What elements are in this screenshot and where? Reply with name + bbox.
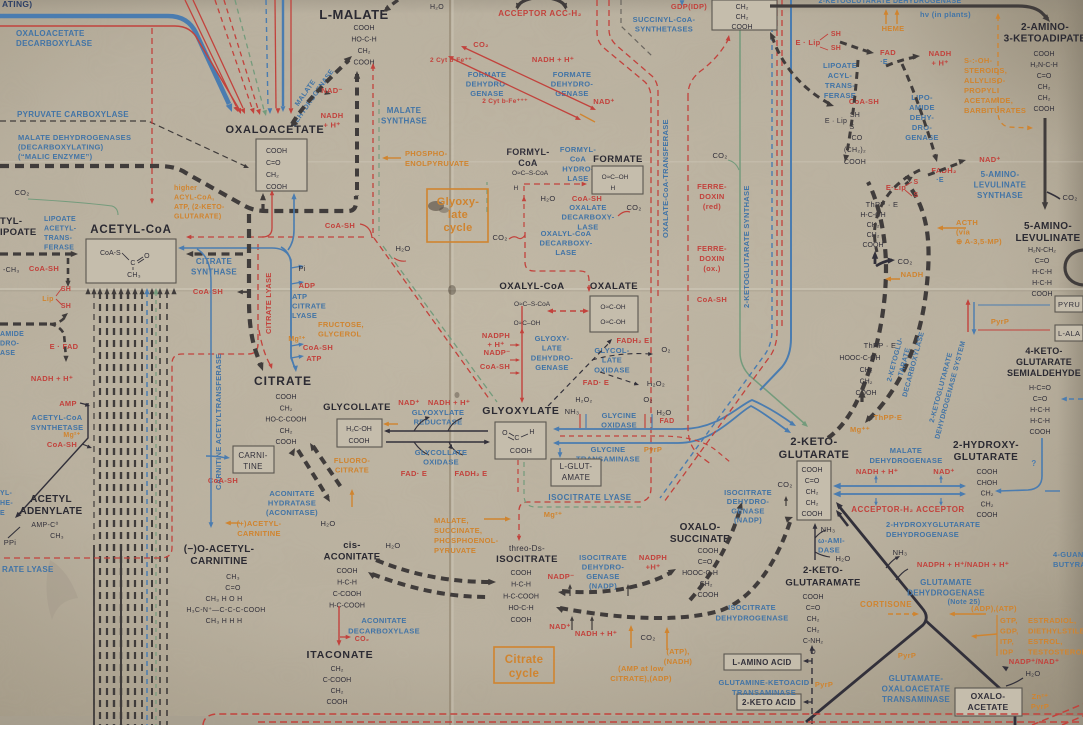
svg-text:H-C-COOH: H-C-COOH	[503, 593, 539, 600]
svg-text:CH₂: CH₂	[981, 501, 994, 508]
svg-text:TRANSAMINASE: TRANSAMINASE	[732, 688, 796, 697]
svg-text:DEHYDRO-: DEHYDRO-	[531, 353, 574, 362]
svg-text:DECARBOXY-: DECARBOXY-	[539, 239, 592, 248]
svg-text:Glyoxy-: Glyoxy-	[437, 196, 479, 208]
svg-text:H₂O: H₂O	[540, 194, 555, 203]
svg-text:NADPH + H⁺/NADH + H⁺: NADPH + H⁺/NADH + H⁺	[917, 560, 1009, 569]
svg-text:FADH₂ E: FADH₂ E	[617, 336, 650, 345]
svg-text:(ACONITASE): (ACONITASE)	[266, 508, 318, 517]
svg-text:ESTRADIOL,: ESTRADIOL,	[1028, 616, 1076, 625]
svg-text:DECARBOXYLASE: DECARBOXYLASE	[348, 627, 420, 636]
svg-text:CH₂: CH₂	[1038, 95, 1051, 102]
svg-text:Mg⁺⁺: Mg⁺⁺	[850, 425, 870, 434]
svg-text:CoA-SH: CoA-SH	[697, 295, 727, 304]
svg-text:COOH: COOH	[276, 394, 297, 401]
svg-text:-CH₃: -CH₃	[3, 267, 20, 274]
svg-text:IDP: IDP	[1000, 648, 1013, 657]
svg-text:H-C-H: H-C-H	[1032, 280, 1052, 287]
svg-text:LASE: LASE	[567, 174, 588, 183]
svg-text:Mg²⁺: Mg²⁺	[63, 432, 80, 439]
svg-text:ACETAMIDE,: ACETAMIDE,	[964, 96, 1013, 105]
svg-text:H₂C-OH: H₂C-OH	[346, 426, 372, 433]
svg-text:MALATE,: MALATE,	[434, 516, 469, 525]
svg-text:ASE: ASE	[0, 350, 15, 357]
svg-text:S: S	[914, 192, 919, 199]
svg-text:OXALYL-CoA: OXALYL-CoA	[499, 281, 564, 292]
svg-text:GLUTARATE: GLUTARATE	[954, 452, 1019, 463]
svg-text:OXALO-: OXALO-	[971, 691, 1006, 701]
svg-text:CO₂: CO₂	[355, 636, 370, 643]
svg-text:FAD· E: FAD· E	[583, 378, 609, 387]
svg-text:O: O	[144, 253, 150, 260]
svg-text:COOH: COOH	[1034, 106, 1055, 113]
svg-text:5-AMINO-: 5-AMINO-	[1024, 221, 1072, 232]
svg-text:NADP⁻: NADP⁻	[548, 572, 575, 581]
svg-text:(NADP): (NADP)	[589, 582, 617, 591]
svg-text:OXALOACETATE: OXALOACETATE	[882, 685, 951, 694]
svg-text:late: late	[448, 209, 468, 221]
svg-text:CoA-SH: CoA-SH	[303, 343, 333, 352]
svg-text:RATE LYASE: RATE LYASE	[2, 565, 54, 574]
svg-text:CoA: CoA	[518, 158, 538, 168]
svg-text:2-KETO-: 2-KETO-	[803, 565, 843, 576]
svg-text:SH: SH	[831, 31, 841, 38]
svg-text:CH₂: CH₂	[860, 367, 873, 374]
svg-text:COOH: COOH	[802, 511, 823, 518]
svg-text:ADP: ADP	[299, 281, 316, 290]
svg-text:?: ?	[1031, 459, 1036, 468]
svg-text:PYRUVATE: PYRUVATE	[434, 546, 476, 555]
svg-text:FADH₂ E: FADH₂ E	[455, 469, 488, 478]
svg-text:H₂O₂: H₂O₂	[647, 379, 665, 388]
svg-text:+H⁺: +H⁺	[646, 563, 661, 572]
svg-text:H₂O: H₂O	[430, 4, 444, 11]
svg-text:DEHYDROGENASE: DEHYDROGENASE	[907, 589, 985, 598]
svg-text:C=O: C=O	[225, 585, 241, 592]
svg-text:CoA-SH: CoA-SH	[208, 476, 238, 485]
svg-text:CITRATE),(ADP): CITRATE),(ADP)	[610, 674, 672, 683]
svg-text:CoA-SH: CoA-SH	[29, 264, 59, 273]
svg-text:DEHYDRO-: DEHYDRO-	[551, 80, 594, 89]
svg-text:4-KETO-: 4-KETO-	[1025, 346, 1062, 356]
svg-text:O≈C–S-CoA: O≈C–S-CoA	[514, 301, 551, 308]
svg-text:ATP, (2-KETO-: ATP, (2-KETO-	[174, 204, 225, 211]
svg-text:GLUTAMATE: GLUTAMATE	[920, 578, 972, 587]
svg-text:GLYCOLLATE: GLYCOLLATE	[415, 448, 468, 457]
svg-text:DRO-: DRO-	[912, 123, 933, 132]
svg-text:H₂O: H₂O	[656, 408, 671, 417]
svg-text:SH: SH	[831, 45, 841, 52]
svg-text:NADH: NADH	[901, 270, 924, 279]
svg-text:SYNTHASE: SYNTHASE	[191, 268, 237, 277]
svg-text:PyrP: PyrP	[644, 445, 662, 454]
svg-text:PyrP: PyrP	[898, 651, 916, 660]
svg-text:PYRU: PYRU	[1058, 300, 1080, 309]
svg-text:GENASE: GENASE	[905, 133, 938, 142]
svg-text:FAD: FAD	[880, 48, 896, 57]
svg-text:2-KETOGLUTARATE SYNTHASE: 2-KETOGLUTARATE SYNTHASE	[742, 185, 751, 308]
svg-text:CH₂: CH₂	[806, 489, 819, 496]
svg-text:hν (in plants): hν (in plants)	[920, 10, 971, 19]
svg-text:C=O: C=O	[266, 160, 281, 167]
svg-text:L-MALATE: L-MALATE	[319, 7, 388, 22]
svg-text:CoA-SH: CoA-SH	[480, 362, 510, 371]
svg-text:CO₂: CO₂	[777, 480, 792, 489]
svg-text:CoA-SH: CoA-SH	[572, 194, 602, 203]
svg-text:(AMP at low: (AMP at low	[618, 664, 664, 673]
svg-text:GLYOXYLATE: GLYOXYLATE	[412, 408, 465, 417]
svg-text:PPi: PPi	[4, 538, 17, 547]
svg-text:CoA-SH: CoA-SH	[193, 287, 223, 296]
svg-text:H₂O: H₂O	[320, 519, 335, 528]
svg-text:C=O: C=O	[1033, 396, 1048, 403]
svg-text:+ H⁺: + H⁺	[931, 59, 948, 68]
svg-text:GENASE: GENASE	[586, 572, 619, 581]
svg-text:CoA-SH: CoA-SH	[47, 440, 77, 449]
svg-text:ACONITATE: ACONITATE	[324, 552, 381, 563]
svg-text:H₂O: H₂O	[385, 541, 400, 550]
svg-text:E · Lip: E · Lip	[825, 118, 847, 125]
svg-text:SYNTHASE: SYNTHASE	[381, 117, 427, 126]
svg-text:NH₃: NH₃	[565, 407, 580, 416]
svg-text:OXALOACETATE: OXALOACETATE	[16, 29, 85, 38]
svg-text:PROPYL: PROPYL	[964, 86, 997, 95]
svg-text:LIPOATE: LIPOATE	[44, 216, 76, 223]
svg-text:ENOLPYRUVATE: ENOLPYRUVATE	[405, 159, 469, 168]
svg-text:H₂O: H₂O	[1025, 669, 1040, 678]
svg-text:CITRATE LYASE: CITRATE LYASE	[264, 272, 273, 334]
svg-text:NADH + H⁺: NADH + H⁺	[532, 55, 574, 64]
svg-text:ITACONATE: ITACONATE	[307, 649, 374, 661]
svg-text:CO₂: CO₂	[712, 151, 727, 160]
svg-text:O≈C-OH: O≈C-OH	[600, 319, 626, 326]
svg-text:(NADH): (NADH)	[664, 657, 693, 666]
svg-text:H-C-OH: H-C-OH	[860, 212, 885, 219]
svg-text:C=O: C=O	[805, 478, 820, 485]
svg-text:SUCCINATE,: SUCCINATE,	[434, 526, 482, 535]
svg-text:C=O: C=O	[806, 605, 821, 612]
svg-text:(via: (via	[956, 228, 971, 237]
svg-text:⊕ A-3,5-MP): ⊕ A-3,5-MP)	[956, 237, 1002, 246]
svg-text:FORMYL-: FORMYL-	[506, 147, 549, 157]
svg-text:GENASE: GENASE	[470, 89, 503, 98]
svg-text:2-KETOGLUTARATE DEHYDROGENASE: 2-KETOGLUTARATE DEHYDROGENASE	[819, 0, 962, 5]
svg-text:PyrP: PyrP	[991, 317, 1009, 326]
svg-text:ACCEPTOR-H₂ ACCEPTOR: ACCEPTOR-H₂ ACCEPTOR	[851, 505, 964, 514]
svg-text:COOH: COOH	[856, 390, 877, 397]
svg-text:COOH: COOH	[802, 467, 823, 474]
svg-text:C-NH₂: C-NH₂	[803, 638, 823, 645]
svg-text:COOH: COOH	[1034, 51, 1055, 58]
svg-text:DECARBOXYLASE: DECARBOXYLASE	[16, 39, 93, 48]
svg-text:O≈C–OH: O≈C–OH	[602, 174, 629, 181]
svg-text:ADENYLATE: ADENYLATE	[19, 506, 82, 517]
svg-text:L-ALA: L-ALA	[1058, 329, 1080, 338]
svg-text:HOOC-C-OH: HOOC-C-OH	[839, 355, 880, 362]
svg-text:BUTYRATE: BUTYRATE	[1053, 560, 1083, 569]
svg-text:C=O: C=O	[1035, 258, 1050, 265]
svg-text:COOH: COOH	[510, 448, 532, 455]
svg-text:FORMATE: FORMATE	[593, 154, 643, 165]
svg-text:COOH: COOH	[803, 594, 824, 601]
svg-text:GLYCEROL: GLYCEROL	[318, 330, 361, 339]
svg-text:COOH: COOH	[354, 25, 375, 32]
svg-text:ITP,: ITP,	[1000, 637, 1014, 646]
svg-text:DEHYDROGENASE: DEHYDROGENASE	[886, 530, 959, 539]
svg-text:O≈C–S-CoA: O≈C–S-CoA	[512, 170, 549, 177]
svg-text:COOH: COOH	[511, 570, 532, 577]
svg-text:BARBITURATES: BARBITURATES	[964, 106, 1026, 115]
svg-text:DEHYDROGENASE: DEHYDROGENASE	[715, 614, 788, 623]
svg-text:COOH: COOH	[511, 617, 532, 624]
svg-text:ACYL-: ACYL-	[828, 71, 853, 80]
svg-text:5-AMINO-: 5-AMINO-	[981, 170, 1020, 179]
svg-text:NADP⁺/NAD⁺: NADP⁺/NAD⁺	[1009, 657, 1060, 666]
svg-text:GTP,: GTP,	[1000, 616, 1018, 625]
svg-text:H₂N-C-H: H₂N-C-H	[1030, 62, 1058, 69]
svg-text:LYASE: LYASE	[292, 311, 317, 320]
svg-text:E: E	[0, 510, 5, 517]
svg-text:O: O	[502, 430, 508, 437]
svg-text:NADH: NADH	[321, 111, 344, 120]
svg-text:FORMYL-: FORMYL-	[560, 145, 596, 154]
svg-text:CoA-SH: CoA-SH	[325, 221, 355, 230]
svg-text:H-C-H: H-C-H	[1030, 407, 1050, 414]
svg-text:COOH: COOH	[276, 439, 297, 446]
svg-text:OXIDASE: OXIDASE	[423, 458, 459, 467]
svg-text:TINE: TINE	[243, 462, 262, 471]
svg-text:2 Cyt b-Fe⁺⁺⁺: 2 Cyt b-Fe⁺⁺⁺	[482, 98, 528, 105]
svg-text:CH₂: CH₂	[981, 491, 994, 498]
svg-text:OXIDASE: OXIDASE	[594, 365, 630, 374]
svg-text:MALATE: MALATE	[387, 106, 422, 115]
svg-text:H: H	[529, 429, 534, 436]
svg-text:Citrate: Citrate	[505, 654, 544, 666]
svg-text:GLYOXY-: GLYOXY-	[535, 334, 570, 343]
svg-text:Zn²⁺: Zn²⁺	[1032, 692, 1049, 701]
svg-text:H-C=O: H-C=O	[1029, 385, 1052, 392]
svg-text:CARNI-: CARNI-	[238, 451, 267, 460]
svg-text:PHOSPHO-: PHOSPHO-	[405, 149, 448, 158]
svg-text:GLUTARAMATE: GLUTARAMATE	[785, 578, 860, 589]
svg-text:GLUTAMINE-KETOACID: GLUTAMINE-KETOACID	[719, 678, 810, 687]
svg-text:GLYCOLLATE: GLYCOLLATE	[323, 402, 391, 413]
svg-text:TESTOSTERONE: TESTOSTERONE	[1028, 648, 1083, 657]
svg-text:COOH: COOH	[844, 159, 866, 166]
svg-text:(+)ACETYL-: (+)ACETYL-	[237, 519, 282, 528]
svg-text:ISOCITRATE: ISOCITRATE	[728, 603, 776, 612]
svg-text:DOXIN: DOXIN	[699, 192, 724, 201]
svg-text:COOH: COOH	[977, 512, 998, 519]
svg-text:DOXIN: DOXIN	[699, 254, 724, 263]
svg-text:L-AMINO ACID: L-AMINO ACID	[732, 658, 791, 667]
svg-text:ω-AMI-: ω-AMI-	[818, 536, 845, 545]
svg-text:ACONITATE: ACONITATE	[269, 489, 314, 498]
svg-text:IPOATE: IPOATE	[0, 227, 36, 238]
svg-text:FRUCTOSE,: FRUCTOSE,	[318, 320, 364, 329]
svg-text:ACCEPTOR ACC-H₂: ACCEPTOR ACC-H₂	[498, 9, 582, 18]
svg-text:higher: higher	[174, 185, 197, 192]
svg-text:GLYCINE: GLYCINE	[602, 411, 637, 420]
svg-text:ISOCITRATE LYASE: ISOCITRATE LYASE	[548, 493, 631, 502]
svg-text:COOH: COOH	[863, 242, 884, 249]
svg-text:C=O: C=O	[698, 559, 713, 566]
svg-text:GLYCINE: GLYCINE	[591, 445, 626, 454]
svg-text:C-COOH: C-COOH	[323, 677, 351, 684]
svg-text:ESTROL,: ESTROL,	[1028, 637, 1063, 646]
svg-text:ISOCITRATE: ISOCITRATE	[579, 553, 627, 562]
svg-text:AMP: AMP	[59, 399, 77, 408]
svg-text:(ATP),: (ATP),	[666, 647, 689, 656]
svg-text:H₃C-N⁺—C-C-C-COOH: H₃C-N⁺—C-C-C-COOH	[186, 607, 265, 614]
svg-text:Mg²⁺: Mg²⁺	[288, 336, 305, 343]
svg-text:2-AMINO-: 2-AMINO-	[1021, 22, 1069, 33]
svg-text:OXALATE: OXALATE	[569, 203, 606, 212]
svg-text:MALATE: MALATE	[890, 446, 923, 455]
svg-text:H: H	[611, 185, 616, 192]
svg-text:ATP: ATP	[306, 354, 321, 363]
svg-text:GLUTARATE): GLUTARATE)	[174, 214, 221, 221]
svg-text:CH₂: CH₂	[736, 14, 749, 21]
svg-text:(DECARBOXYLATING): (DECARBOXYLATING)	[18, 143, 104, 152]
svg-text:ACTH: ACTH	[956, 218, 978, 227]
svg-text:DECARBOXY-: DECARBOXY-	[561, 213, 614, 222]
svg-text:HE-: HE-	[0, 500, 13, 507]
svg-text:cycle: cycle	[509, 668, 539, 680]
svg-text:ACETYL-CoA: ACETYL-CoA	[90, 224, 171, 236]
svg-text:MALATE DEHYDROGENASES: MALATE DEHYDROGENASES	[18, 133, 131, 142]
svg-text:CH₂: CH₂	[807, 627, 820, 634]
svg-text:GENASE: GENASE	[555, 89, 588, 98]
svg-text:AMP-C⁰: AMP-C⁰	[31, 521, 58, 529]
svg-text:TRANS-: TRANS-	[44, 235, 73, 242]
svg-text:AMIDE: AMIDE	[0, 331, 24, 338]
svg-text:HOOC-C-H: HOOC-C-H	[682, 570, 718, 577]
svg-text:CH₃ H H H: CH₃ H H H	[206, 618, 243, 625]
svg-text:DEHYDRO-: DEHYDRO-	[466, 80, 509, 89]
svg-text:H-C-COOH: H-C-COOH	[329, 603, 365, 610]
svg-text:OXALOACETATE: OXALOACETATE	[225, 124, 324, 136]
svg-text:COOH: COOH	[698, 592, 719, 599]
svg-text:CH₂: CH₂	[358, 48, 371, 55]
svg-text:SEMIALDEHYDE: SEMIALDEHYDE	[1007, 368, 1081, 378]
svg-text:ACYL-CoA,: ACYL-CoA,	[174, 195, 214, 202]
svg-text:TYL-: TYL-	[0, 216, 22, 227]
svg-text:NAD⁺: NAD⁺	[979, 155, 1000, 164]
svg-text:CH₂: CH₂	[807, 616, 820, 623]
svg-text:FORMATE: FORMATE	[553, 70, 592, 79]
svg-text:ISOCITRATE: ISOCITRATE	[496, 554, 558, 565]
svg-text:(ox.): (ox.)	[703, 264, 721, 273]
svg-text:CH₂: CH₂	[1038, 84, 1051, 91]
svg-text:OXALO-: OXALO-	[680, 522, 721, 533]
svg-text:2-HYDROXY-: 2-HYDROXY-	[953, 440, 1019, 451]
svg-text:CH₂: CH₂	[331, 688, 344, 695]
svg-text:+ H⁺: + H⁺	[323, 121, 340, 130]
svg-text:S-:-OH-: S-:-OH-	[964, 56, 993, 65]
svg-text:CH₃: CH₃	[50, 533, 64, 540]
svg-text:LEVULINATE: LEVULINATE	[1015, 233, 1080, 244]
svg-text:CH₂: CH₂	[280, 428, 293, 435]
svg-text:GLUTARATE: GLUTARATE	[1016, 357, 1072, 367]
svg-text:NADH + H⁺: NADH + H⁺	[575, 629, 617, 638]
svg-text:·E: ·E	[936, 177, 944, 184]
svg-text:CH₂: CH₂	[736, 4, 749, 11]
svg-text:SUCCINYL-CoA-: SUCCINYL-CoA-	[633, 15, 696, 24]
svg-text:CH₃: CH₃	[127, 272, 141, 279]
svg-text:GENASE: GENASE	[731, 506, 764, 515]
svg-text:ATING): ATING)	[2, 0, 32, 9]
svg-text:NAD⁺: NAD⁺	[933, 467, 954, 476]
svg-text:C: C	[130, 260, 135, 267]
svg-text:NH₃: NH₃	[893, 548, 908, 557]
svg-text:CITRATE: CITRATE	[196, 257, 233, 266]
svg-text:HEME: HEME	[882, 24, 905, 33]
svg-text:YL-: YL-	[0, 490, 13, 497]
svg-text:PYRUVATE CARBOXYLASE: PYRUVATE CARBOXYLASE	[17, 110, 129, 119]
svg-text:C: C	[514, 435, 519, 442]
svg-text:NAD⁻: NAD⁻	[321, 86, 342, 95]
svg-text:NAD⁺: NAD⁺	[593, 97, 614, 106]
svg-text:CH₂: CH₂	[867, 222, 880, 229]
svg-text:HYDRO-: HYDRO-	[562, 164, 594, 173]
svg-text:FAD· E: FAD· E	[401, 469, 427, 478]
svg-text:FERRE-: FERRE-	[697, 182, 727, 191]
svg-text:ACETYL-: ACETYL-	[44, 226, 77, 233]
svg-text:GENASE: GENASE	[535, 363, 568, 372]
svg-text:CO: CO	[851, 135, 862, 142]
svg-text:H₂N-CH₂: H₂N-CH₂	[1028, 247, 1056, 254]
svg-text:cis-: cis-	[343, 540, 361, 551]
svg-text:COOH: COOH	[327, 699, 348, 706]
svg-text:NADH + H⁺: NADH + H⁺	[31, 374, 73, 383]
svg-text:cycle: cycle	[443, 222, 472, 234]
svg-text:CITRATE: CITRATE	[292, 302, 326, 311]
svg-text:DEHYDRO-: DEHYDRO-	[582, 563, 625, 572]
svg-text:ACONITATE: ACONITATE	[361, 616, 406, 625]
svg-text:NAD⁺: NAD⁺	[398, 398, 419, 407]
svg-text:DEHYDROGENASE: DEHYDROGENASE	[869, 456, 942, 465]
svg-text:CARNITINE: CARNITINE	[237, 529, 281, 538]
svg-text:HYDRATASE: HYDRATASE	[268, 499, 316, 508]
svg-text:COOH: COOH	[266, 184, 287, 191]
svg-text:COOH: COOH	[698, 548, 719, 555]
svg-text:H-C-H: H-C-H	[1030, 418, 1050, 425]
svg-text:COOH: COOH	[337, 568, 358, 575]
svg-text:O≈C–OH: O≈C–OH	[514, 320, 541, 327]
svg-text:H₂O₂: H₂O₂	[575, 397, 592, 404]
svg-text:CO₂: CO₂	[897, 257, 912, 266]
svg-text:CO₂: CO₂	[14, 188, 29, 197]
svg-text:DIETHYLSTILB: DIETHYLSTILB	[1028, 627, 1083, 636]
svg-text:HO-C-H: HO-C-H	[351, 37, 376, 44]
svg-text:DRO-: DRO-	[0, 341, 19, 348]
svg-text:CoA: CoA	[570, 155, 587, 164]
svg-text:NADH: NADH	[929, 49, 952, 58]
svg-text:FAD: FAD	[660, 418, 675, 425]
svg-text:COOH: COOH	[1030, 429, 1051, 436]
svg-text:GDP,: GDP,	[1000, 627, 1019, 636]
svg-text:ATP: ATP	[292, 292, 307, 301]
svg-text:CO₂: CO₂	[1062, 193, 1077, 202]
svg-text:COOH: COOH	[349, 438, 370, 445]
svg-text:LIPOATE: LIPOATE	[823, 61, 857, 70]
svg-text:NADP⁻: NADP⁻	[484, 348, 511, 357]
svg-text:NADH + H⁺: NADH + H⁺	[856, 467, 898, 476]
svg-text:LASE: LASE	[577, 222, 598, 231]
svg-text:SH: SH	[61, 303, 71, 310]
svg-text:(−)O-ACETYL-: (−)O-ACETYL-	[184, 544, 255, 555]
